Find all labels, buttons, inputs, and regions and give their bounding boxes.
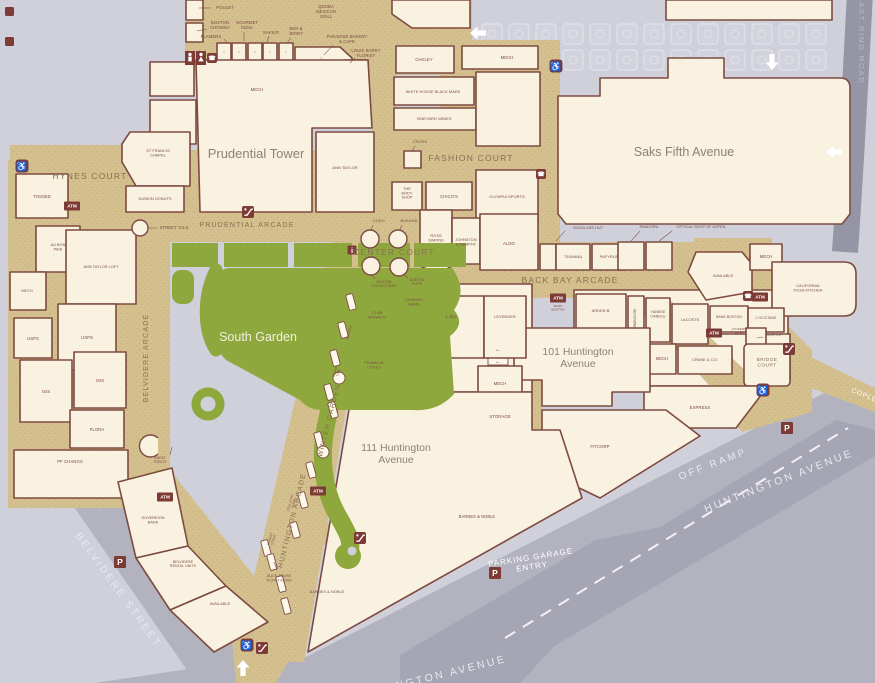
map-canvas: ☎☎☎♿♿♿♿ATMATMATMATMATMATMiPPP POULETBOST… <box>0 0 875 683</box>
handicap-icon-1: ♿ <box>16 160 29 173</box>
block-cross-kiosk <box>404 151 421 168</box>
label-chicos: CHICO'S <box>440 194 458 199</box>
label-loccitane: L'OCCITANE <box>756 316 778 320</box>
label-available-right: AVAILABLE <box>713 274 734 278</box>
handicap-icon-2: ♿ <box>550 60 563 73</box>
label-isis-1: ISIS <box>42 389 50 394</box>
label-flora: FLORA <box>90 427 105 432</box>
svg-text:♿: ♿ <box>757 384 768 395</box>
kiosk-koko <box>361 230 379 248</box>
label-white-house-black-market: WHITE HOUSE BLACK MARK <box>406 89 461 94</box>
label-prudential-tower: Prudential Tower <box>208 146 305 161</box>
atm-icon-2: ATM <box>157 493 173 502</box>
label-arden-b: ARDEN B. <box>592 308 611 313</box>
block-optical-shop <box>646 242 672 270</box>
parking-stall <box>806 24 826 44</box>
svg-text:ATM: ATM <box>67 204 77 209</box>
label-prudential-arcade: PRUDENTIAL ARCADE <box>199 222 294 229</box>
label-stall-arrow-2: ↓ <box>238 49 240 54</box>
svg-text:ATM: ATM <box>313 489 323 494</box>
svg-text:P: P <box>784 423 790 433</box>
parking-stall <box>590 24 610 44</box>
svg-text:☎: ☎ <box>208 55 216 62</box>
label-back-bay-arcade: BACK BAY ARCADE <box>521 275 618 285</box>
svg-text:♿: ♿ <box>16 160 27 171</box>
block-service-1 <box>150 62 194 96</box>
parking-icon-3: P <box>781 422 793 434</box>
block-poulet <box>186 0 203 20</box>
block-service-3 <box>476 72 540 146</box>
label-poulet: POULET <box>216 5 234 10</box>
parking-stall <box>563 24 583 44</box>
label-saks-fifth-avenue: Saks Fifth Avenue <box>634 145 735 159</box>
label-stall-arrow-3: ↓ <box>254 49 256 54</box>
label-boston-chowda: BOSTONCHOWDA <box>210 20 230 30</box>
parking-stall <box>752 24 772 44</box>
parking-stall <box>644 24 664 44</box>
label-usps-2: USPS <box>81 335 93 340</box>
label-flamers: FLAMERS <box>201 34 222 39</box>
atm-icon-4: ATM <box>550 294 566 303</box>
label-levenger: LEVENGER <box>494 314 516 319</box>
label-teavana: TEAVANA <box>564 254 582 259</box>
parking-stall <box>698 24 718 44</box>
label-bridge-court: BRIDGECOURT <box>757 357 778 369</box>
label-optical-shop-of-aspen: OPTICAL SHOP OF ASPEN <box>677 225 726 229</box>
parking-stall <box>617 24 637 44</box>
label-lacoste: LACOSTE <box>681 317 700 322</box>
block-saks <box>558 58 850 224</box>
map-marker-1 <box>5 7 14 16</box>
label-stall-arrow-1: ↓ <box>223 49 225 54</box>
label-jjill: J.JILL <box>445 314 457 319</box>
label-oakley: OAKLEY <box>415 57 433 62</box>
parking-stall <box>725 50 745 70</box>
parking-stall <box>752 50 772 70</box>
block-pf-changs <box>14 450 128 498</box>
label-fitcorp: FITCORP <box>590 444 609 449</box>
parking-icon-1: P <box>114 556 126 568</box>
phone-icon-3: ☎ <box>743 291 753 301</box>
label-usps-1: USPS <box>27 336 39 341</box>
label-mech-top: MECH <box>251 87 264 92</box>
atm-icon-1: ATM <box>64 202 80 211</box>
label-south-garden: South Garden <box>219 330 297 344</box>
label-belvidere-arcade: BELVIDERE ARCADE <box>143 314 150 403</box>
label-street-talk: STREET TALK <box>160 225 189 230</box>
mall-map: ☎☎☎♿♿♿♿ATMATMATMATMATMATMiPPP POULETBOST… <box>0 0 875 683</box>
label-california-pizza-kitchen: CALIFORNIAPIZZA KITCHEN <box>794 284 823 292</box>
block-pandora <box>618 242 644 270</box>
block-levenger <box>484 296 526 358</box>
parking-icon-2: P <box>489 567 501 579</box>
atm-icon-6: ATM <box>752 293 768 302</box>
label-dunkin-donuts: DUNKIN DONUTS <box>138 196 171 201</box>
svg-text:ATM: ATM <box>553 296 563 301</box>
label-ann-taylor-loft: ANN TAYLOR LOFT <box>83 265 119 269</box>
kiosk-sweet-treats <box>139 435 158 457</box>
svg-text:P: P <box>492 568 498 578</box>
label-clutch: CLUTCH <box>767 333 782 337</box>
label-storage: STORAGE <box>489 414 510 419</box>
label-koko: KOKO <box>373 218 384 223</box>
restroom-women-icon <box>196 51 206 65</box>
label-johnston-murphy: JOHNSTON& MURPHY <box>455 238 476 246</box>
kiosk-busuma <box>389 230 407 248</box>
parking-stall <box>725 24 745 44</box>
label-stall-arrow-6: ↓ <box>320 55 322 60</box>
label-ben-jerry: BEN &JERRY <box>289 26 303 36</box>
label-ann-taylor: ANN TAYLOR <box>332 165 357 170</box>
label-hynes-court: HYNES COURT <box>53 171 128 181</box>
parking-stall <box>563 50 583 70</box>
parking-stall <box>671 24 691 44</box>
kiosk-boston-pops <box>390 258 408 276</box>
label-stall-arrow-4: ↓ <box>269 49 271 54</box>
label-fashion-court: FASHION COURT <box>428 153 513 163</box>
label-belvidere-rental-units: BELVIDERERENTAL UNITS <box>170 560 197 568</box>
label-pf-changs: PF CHANGS <box>57 459 83 464</box>
svg-text:☎: ☎ <box>744 293 752 300</box>
label-pandora: PANDORA <box>640 225 659 229</box>
label-barnes-noble-1: BARNES & NOBLE <box>459 514 496 519</box>
label-yankee-candle: YANKEECANDLE <box>650 310 666 318</box>
label-esc-arrow-2: ← <box>495 359 501 365</box>
label-available-bottom: AVAILABLE <box>210 602 231 606</box>
label-isis-2: ISIS <box>96 378 104 383</box>
label-mech-101: MECH <box>494 381 507 386</box>
label-sakkio: SAKKIO <box>263 30 280 35</box>
label-barnes-noble-2: BARNES & NOBLE <box>310 589 345 594</box>
label-bank-boston: BANK BOSTON <box>716 315 742 319</box>
phone-icon-1: ☎ <box>207 53 217 63</box>
label-sweet-treats: SWEETTREATS <box>153 456 167 464</box>
label-esc-arrow-1: ← <box>495 347 501 353</box>
svg-text:♿: ♿ <box>241 639 252 650</box>
label-sunglass-hut: SUNGLASS HUT <box>573 226 604 230</box>
label-mech-tr: MECH <box>501 55 514 60</box>
kiosk-boston-collections <box>362 257 380 275</box>
label-aldo: ALDO <box>503 241 516 246</box>
handicap-icon-3: ♿ <box>757 384 770 397</box>
block-ann-taylor <box>316 132 374 212</box>
svg-text:ATM: ATM <box>160 495 170 500</box>
restroom-men-icon <box>185 51 195 65</box>
label-stall-arrow-5: ↓ <box>285 49 287 54</box>
parking-stall <box>806 50 826 70</box>
svg-text:☎: ☎ <box>537 171 545 178</box>
garden-swirl <box>335 543 361 569</box>
block-lacoste <box>672 304 708 344</box>
label-olympia-sports: OLYMPIA SPORTS <box>489 194 525 199</box>
parking-stall <box>590 50 610 70</box>
label-mech-center: MECH <box>656 356 669 361</box>
map-marker-2 <box>5 37 14 46</box>
label-papyrus: PAPYRUS <box>600 254 619 259</box>
svg-text:♿: ♿ <box>550 60 561 71</box>
handicap-icon-4: ♿ <box>241 639 254 652</box>
label-duck-tours: DUCK TOURSTICKET KIOSK <box>266 574 292 582</box>
kiosk-street-talk <box>132 220 148 236</box>
atm-icon-3: ATM <box>310 487 326 496</box>
label-mech-right: MECH <box>760 254 773 259</box>
label-center-court: CENTER COURT <box>353 247 435 257</box>
label-express: EXPRESS <box>690 405 711 410</box>
block-boston-chowda <box>186 23 203 42</box>
escalator-icon-4 <box>256 642 268 654</box>
label-busuma: BUSUMA <box>401 218 418 223</box>
atm-icon-5: ATM <box>706 329 722 338</box>
label-cross: CROSS <box>413 139 427 144</box>
label-swarovski: SWAROVSKI <box>633 309 637 329</box>
block-small-unit <box>540 244 556 270</box>
label-mech-left: MECH <box>21 289 33 293</box>
block-st-francis-chapel <box>122 132 190 186</box>
label-east-ring-road: EAST RING ROAD <box>857 0 866 85</box>
parking-stall <box>779 24 799 44</box>
svg-text:ATM: ATM <box>755 295 765 300</box>
svg-text:ATM: ATM <box>709 331 719 336</box>
label-tossed: TOSSED <box>33 194 51 199</box>
parking-stall <box>779 50 799 70</box>
phone-icon-2: ☎ <box>536 169 546 179</box>
label-crane-co: CRANE & CO. <box>692 357 718 362</box>
block-above-saks <box>666 0 832 20</box>
escalator-icon-1 <box>242 206 254 218</box>
escalator-icon-3 <box>783 343 795 355</box>
escalator-icon-2 <box>354 532 366 544</box>
parking-stall <box>644 50 664 70</box>
svg-text:P: P <box>117 557 123 567</box>
label-vineyard-vines: VINEYARD WINES <box>416 116 451 121</box>
parking-stall <box>617 50 637 70</box>
